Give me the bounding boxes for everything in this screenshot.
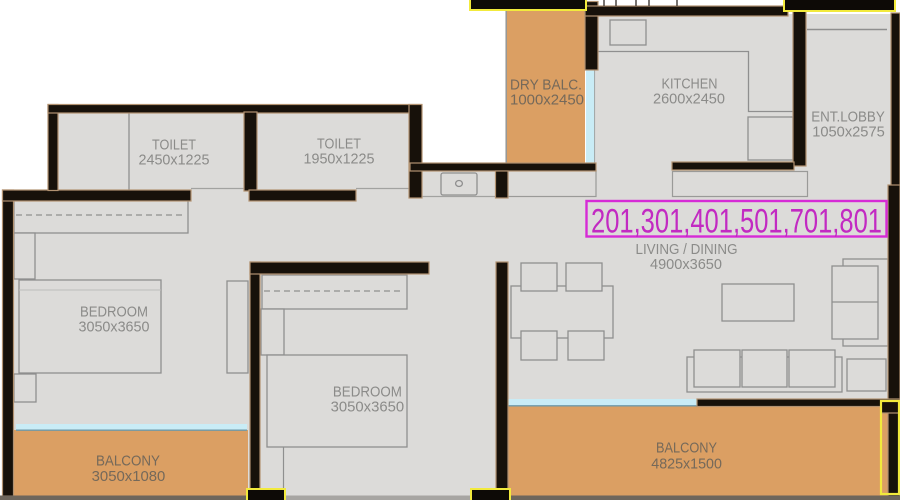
svg-text:3050x3650: 3050x3650 [79,319,150,336]
svg-text:2600x2450: 2600x2450 [653,90,725,107]
svg-text:201,301,401,501,701,801: 201,301,401,501,701,801 [591,203,882,241]
svg-text:4900x3650: 4900x3650 [650,256,722,273]
svg-text:4825x1500: 4825x1500 [651,456,722,473]
svg-text:BALCONY: BALCONY [96,453,160,470]
svg-text:BALCONY: BALCONY [656,440,717,457]
svg-text:2450x1225: 2450x1225 [139,152,210,169]
svg-text:1950x1225: 1950x1225 [304,151,375,168]
svg-text:1000x2450: 1000x2450 [510,92,584,109]
svg-text:3050x3650: 3050x3650 [331,399,405,416]
svg-text:3050x1080: 3050x1080 [92,468,166,485]
svg-text:1050x2575: 1050x2575 [812,124,885,141]
